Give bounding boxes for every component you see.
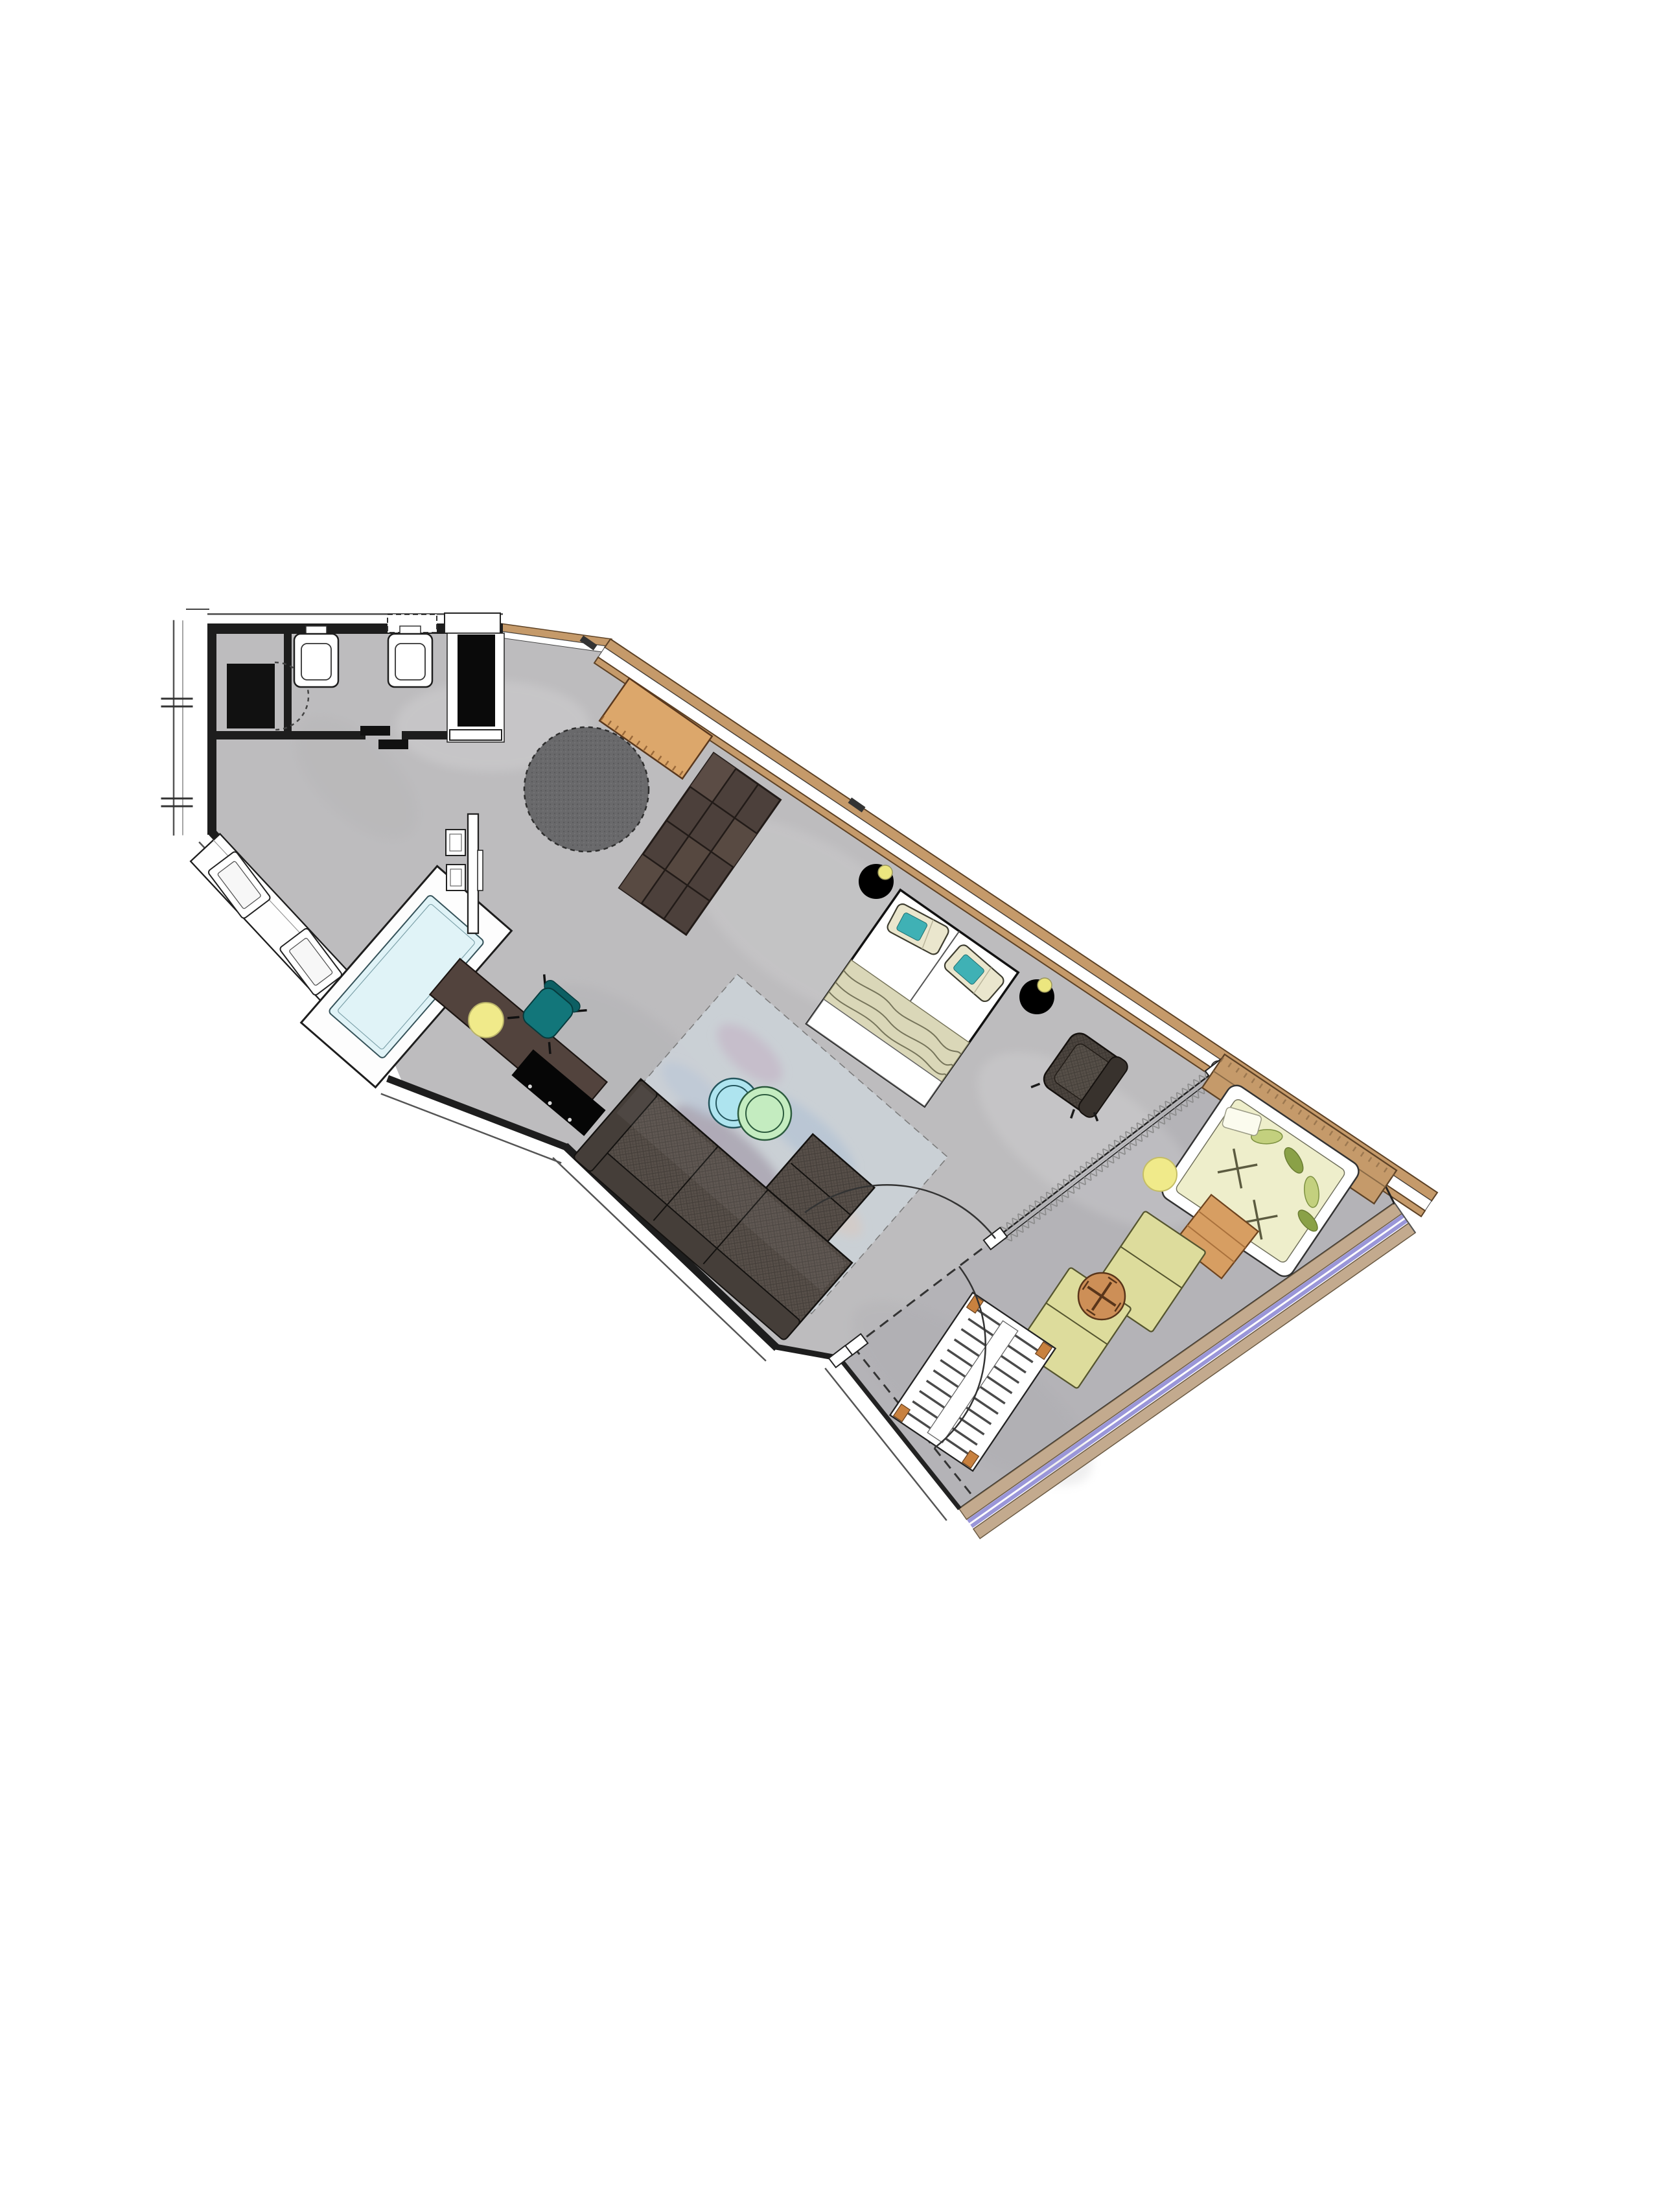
entrance-mat xyxy=(227,664,275,728)
wall-entry-partition-2 xyxy=(402,731,450,739)
pouf-living xyxy=(469,1003,504,1038)
wardrobe xyxy=(458,634,495,727)
pouf-terrace xyxy=(1143,1158,1177,1191)
wc-bidet xyxy=(388,626,432,687)
wardrobe-shelf xyxy=(450,730,502,740)
wc-toilet xyxy=(294,626,338,687)
side-stool xyxy=(447,865,465,891)
partition-panel-tab xyxy=(478,850,483,891)
wall-niche xyxy=(445,613,500,633)
side-stool xyxy=(446,830,465,856)
floor-plan-page xyxy=(0,0,1659,2212)
floor-plan-drawing xyxy=(0,0,1659,2212)
wardrobe-niche xyxy=(447,633,504,742)
bedside-lamp xyxy=(878,865,892,879)
bedside-lamp xyxy=(1038,978,1052,992)
wall-left xyxy=(207,623,216,835)
wall-wc-left xyxy=(284,633,292,737)
round-rug xyxy=(524,727,649,852)
partition-panel xyxy=(468,814,478,933)
